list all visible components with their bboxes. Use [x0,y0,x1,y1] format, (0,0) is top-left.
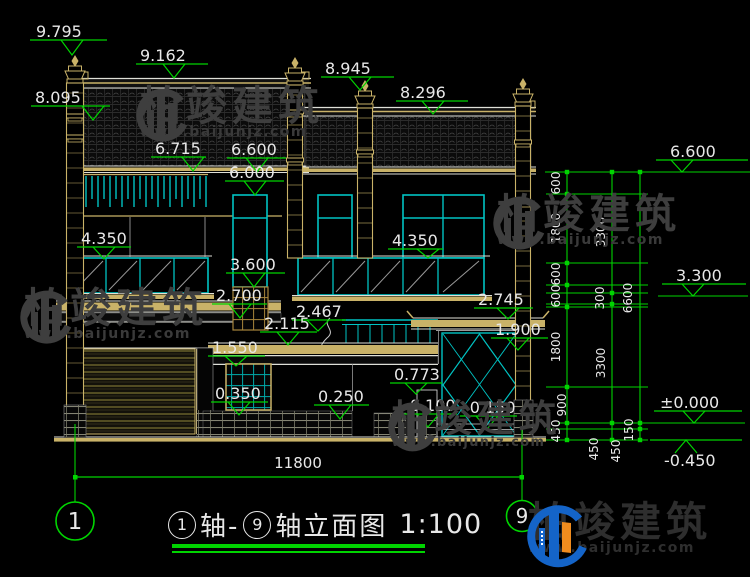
dimension-label: 3300 [594,217,608,248]
elevation-marker: 2.115 [260,314,317,345]
elevation-label: 2.115 [264,314,310,333]
title-axis-bubble-1: 1 [168,511,196,539]
dimension-label: 150 [622,419,636,442]
elevation-label: 0.773 [394,365,440,384]
dimension-label: 6600 [621,283,635,314]
elevation-label: 8.095 [35,88,81,107]
title-underline-thin [172,551,425,553]
dimension-label: 300 [593,287,607,310]
elevation-marker: 9.795 [30,22,107,55]
elevation-label: 8.296 [400,83,446,102]
dimension-chain: 6600150450 [609,170,642,463]
dimension-label: 450 [549,420,563,443]
elevation-label: 4.350 [392,231,438,250]
right-roof [302,101,536,174]
title-axis-bubble-9: 9 [243,511,271,539]
elevation-label: 3.600 [230,255,276,274]
dimension-chain: 60018006006001800900450 [549,170,569,443]
right-window-band [292,256,492,301]
dimension-label: 900 [555,394,569,417]
elevation-label: 2.700 [216,286,262,305]
dimension-label: 450 [609,440,623,463]
elevation-marker: 8.945 [321,59,394,90]
axis-bubble-left: 1 [68,509,83,535]
elevation-marker: -0.450 [650,440,742,470]
elevation-marker: 3.300 [662,266,746,296]
elevation-marker: 9.162 [136,46,208,78]
dimension-label: 1800 [549,213,563,244]
elevation-label: 9.162 [140,46,186,65]
elevation-label: 9.795 [36,22,82,41]
left-window-band [66,256,214,299]
elevation-label: 8.945 [325,59,371,78]
garage-door [66,348,214,434]
decorative-column [513,78,533,437]
overall-width-label: 11800 [274,454,322,472]
dimension-label: 600 [549,172,563,195]
title-text-1: 轴- [200,506,239,543]
elevation-label: 1.550 [212,338,258,357]
dimension-label: 450 [587,438,601,461]
elevation-label: 0.350 [215,384,261,403]
elevation-label: 0.250 [318,387,364,406]
elevation-label: 6.000 [229,163,275,182]
elevation-marker: 6.600 [656,142,748,172]
elevation-label: 6.715 [155,139,201,158]
axis-bubble-right: 9 [516,504,529,528]
cad-canvas: 9.7959.1628.9458.2968.0956.7156.6006.000… [0,0,750,577]
elevation-label: 2.745 [478,290,524,309]
eave-fringe [84,175,208,208]
elevation-label: -0.100 [404,396,456,415]
elevation-label: ±0.000 [660,393,719,412]
elevation-label: -0.450 [664,451,716,470]
elevation-label: 1.900 [495,320,541,339]
window-right-1 [318,195,352,258]
elevation-label: 6.600 [231,140,277,159]
elevation-label: 3.300 [676,266,722,285]
dimension-label: 1800 [549,332,563,363]
dimension-label: 600 [549,285,563,308]
elevation-label: 4.350 [81,229,127,248]
title-scale: 1:100 [399,509,482,540]
elevation-label: 6.600 [670,142,716,161]
elevation-drawing: 9.7959.1628.9458.2968.0956.7156.6006.000… [0,0,750,577]
decorative-column [355,80,375,258]
ground-line [54,437,546,442]
elevation-label: -0.150 [464,398,516,417]
dimension-label: 600 [549,263,563,286]
brick-wainscot [203,411,406,437]
title-text-2: 轴立面图 [275,506,387,543]
title-underline-thick [172,544,425,548]
dimension-label: 3300 [594,348,608,379]
dimension-chain: 33003003300450 [587,170,614,461]
elevation-marker: ±0.000 [654,393,742,423]
decorative-column [285,57,305,258]
elevation-marker: 4.350 [77,229,131,259]
drawing-title: 1 轴- 9 轴立面图 1:100 [168,506,482,543]
